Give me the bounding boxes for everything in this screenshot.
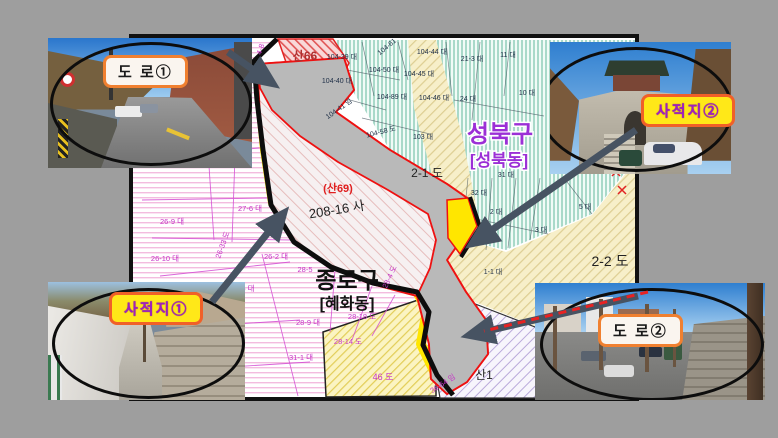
road-2-2-label: 2-2 도 — [591, 253, 628, 269]
parcel-label: 104-89 대 — [377, 93, 407, 101]
parcel-label: 104-45 대 — [404, 70, 434, 78]
district-label-jongno: 종로구 — [315, 267, 378, 293]
parcel-label: 31 대 — [498, 171, 514, 179]
parcel-label: 104-50 대 — [369, 66, 399, 74]
parcel-label: 28-5 — [297, 265, 312, 274]
parcel-label: 104-44 대 — [417, 48, 447, 56]
parcel-label: 10 대 — [519, 89, 535, 97]
callout-historic-site-2: 사적지② — [641, 94, 735, 127]
subject-san-label: (산69) — [323, 181, 353, 195]
road-2-1-label: 2-1 도 — [411, 166, 443, 180]
parcel-label: 32 대 — [471, 189, 487, 197]
parcel-label: 104-39 대 — [327, 53, 357, 61]
parcel-label: 24 대 — [460, 95, 476, 103]
callout-road-1: 도 로① — [103, 55, 188, 88]
parcel-label: 26-2 대 — [264, 252, 288, 261]
parcel-label: 11 대 — [500, 51, 516, 59]
parcel-label: 104-40 대 — [322, 77, 352, 85]
parcel-label: 103 대 — [413, 133, 433, 141]
district-sublabel-seongbuk: [성북동] — [470, 151, 528, 170]
parcel-label: 28-18 도 — [348, 312, 376, 321]
san1-label: 산1 — [475, 368, 493, 382]
parcel-label: 21-3 대 — [461, 55, 483, 63]
parcel-label: 5 대 — [579, 203, 591, 211]
parcel-label: 2 대 — [490, 208, 502, 216]
slide: 산66 (산69) 208-16 사 2-1 도 2-2 도 산1 46 도 성… — [0, 0, 778, 438]
district-sublabel-jongno: [혜화동] — [320, 294, 375, 313]
callout-road-2: 도 로② — [598, 314, 683, 347]
parcel-label: 31-1 대 — [289, 353, 313, 362]
san66-label: 산66 — [293, 48, 318, 63]
parcel-label: 3 대 — [535, 226, 547, 234]
road-46-label: 46 도 — [373, 372, 394, 382]
parcel-label: 26-9 대 — [160, 217, 184, 226]
parcel-label: 104-46 대 — [419, 94, 449, 102]
callout-historic-site-1: 사적지① — [109, 292, 203, 325]
parcel-label: 28-14 도 — [334, 337, 362, 346]
parcel-label: 1-1 대 — [484, 268, 503, 276]
parcel-label: 27-6 대 — [238, 204, 262, 213]
parcel-label: 26-10 대 — [151, 254, 179, 263]
parcel-label: 28-9 대 — [296, 318, 320, 327]
district-label-seongbuk: 성북구 — [467, 121, 533, 148]
